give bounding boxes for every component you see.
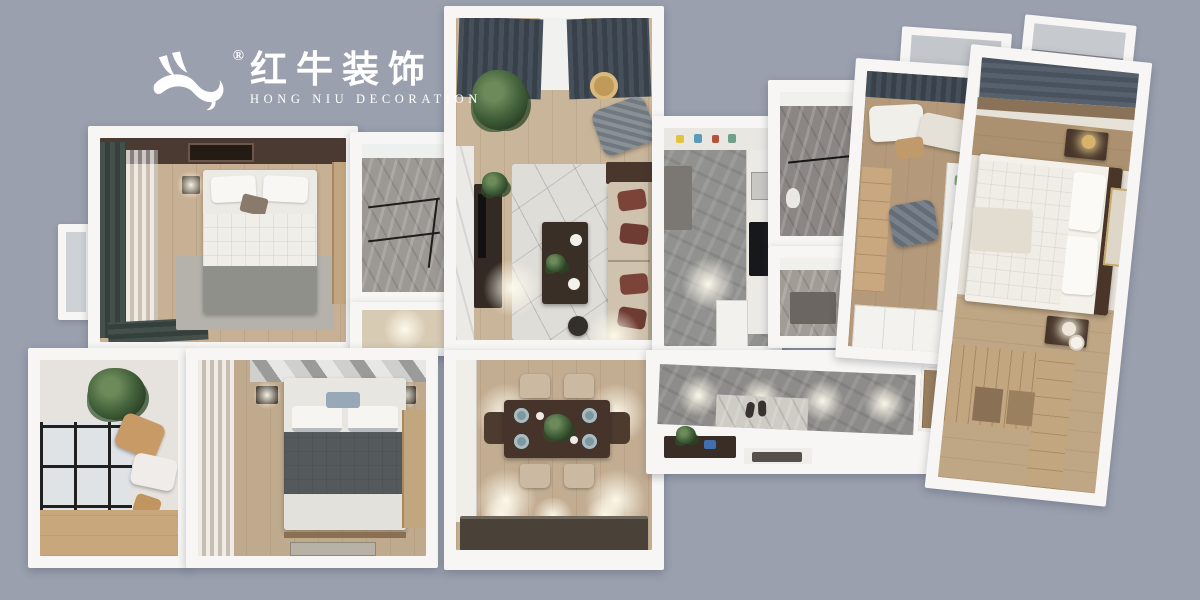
- sheer-curtain: [126, 150, 158, 332]
- pillow: [262, 175, 308, 203]
- door-lintel: [362, 144, 446, 158]
- shoes: [758, 400, 766, 416]
- bed: [284, 378, 406, 530]
- dining-room-floor: [456, 360, 652, 550]
- table-centerpiece: [544, 414, 572, 440]
- console-plant: [676, 426, 696, 444]
- shelf-item: [712, 135, 719, 143]
- registered-mark: ®: [233, 48, 244, 65]
- alcove-floor: [362, 310, 446, 348]
- spotlight-glow: [862, 381, 908, 427]
- logo-text: 红牛装饰 HONG NIU DECORATION: [250, 50, 482, 107]
- dining-chair: [564, 374, 594, 398]
- small-dish: [570, 436, 578, 444]
- prep-counter: [664, 166, 692, 230]
- sheer-curtain-band: [198, 360, 234, 556]
- place-setting: [582, 408, 597, 423]
- seat-pillow: [895, 136, 926, 160]
- bay-window-glass: [66, 232, 86, 312]
- leaning-art: [290, 542, 376, 556]
- duvet-fold: [284, 494, 406, 530]
- hallway-floor-wrap: [656, 360, 966, 464]
- dining-chair: [520, 464, 550, 488]
- tv-marble-wall: [456, 146, 474, 340]
- side-cabinet: [456, 360, 477, 522]
- secondary-bedroom-floor: [100, 138, 346, 342]
- dining-table: [504, 400, 610, 458]
- dish: [568, 278, 580, 290]
- dark-quilt: [284, 432, 406, 494]
- tv-console: [474, 184, 502, 308]
- logo: ® 红牛装饰 HONG NIU DECORATION: [148, 50, 482, 116]
- accent-pillow: [617, 306, 648, 330]
- spotlight-glow: [676, 373, 722, 419]
- shoe-counter: [744, 448, 812, 464]
- duvet: [203, 214, 317, 270]
- coffee-table: [542, 222, 588, 304]
- room-shower: [350, 132, 458, 304]
- wardrobe-panel: [972, 386, 1003, 423]
- kitchen-shelf: [664, 128, 770, 150]
- hallway-floor: [657, 364, 915, 435]
- room-secondary-bedroom: [88, 126, 358, 354]
- bed: [964, 154, 1123, 316]
- bed: [203, 170, 317, 314]
- dining-chair: [520, 374, 550, 398]
- room-kitchen: [652, 116, 782, 358]
- counter-tray: [752, 452, 802, 462]
- sofa-seam: [608, 260, 650, 262]
- accent-pillow: [619, 273, 649, 295]
- pillow: [292, 406, 342, 432]
- desk: [854, 167, 893, 293]
- kitchen-counter: [746, 150, 770, 334]
- page: { "background_color": "#9aa0ae", "logo":…: [0, 0, 1200, 600]
- room-dining: [444, 350, 664, 570]
- lounge-cushion: [129, 452, 178, 492]
- accent-pillow: [619, 223, 649, 246]
- gold-side-table: [590, 72, 618, 100]
- third-bedroom-floor: [198, 360, 426, 556]
- table-plant: [546, 254, 566, 272]
- wardrobe: [332, 162, 346, 304]
- tv-panel: [188, 143, 254, 162]
- dish: [570, 234, 582, 246]
- logo-english-name: HONG NIU DECORATION: [250, 92, 482, 107]
- nightstand: [182, 176, 200, 194]
- master-bedroom-floor: [938, 57, 1139, 493]
- refrigerator: [716, 300, 748, 346]
- accent-pillow: [326, 392, 360, 408]
- window-curtain-left: [100, 142, 126, 338]
- lounge-chair: [589, 94, 652, 158]
- tv-screen: [478, 194, 486, 258]
- console-decor: [704, 440, 716, 449]
- room-third-bedroom: [186, 348, 438, 568]
- entry-console: [664, 436, 736, 458]
- sofa: [608, 182, 652, 340]
- wardrobe: [402, 410, 426, 528]
- bed-end-bench: [284, 532, 406, 538]
- bath-mat: [790, 292, 836, 324]
- balcony-floor: [40, 360, 178, 556]
- small-dish: [536, 412, 544, 420]
- shelf-item: [694, 134, 702, 143]
- place-setting: [514, 434, 529, 449]
- throw-blanket: [971, 207, 1033, 254]
- shelf-item: [728, 134, 736, 143]
- glass-rail: [368, 232, 440, 243]
- shelf-item: [676, 135, 684, 143]
- console-plant: [482, 172, 508, 196]
- potted-plant: [88, 368, 146, 420]
- round-stool: [568, 316, 588, 336]
- shower-room-floor: [362, 144, 446, 292]
- door-lintel: [780, 92, 864, 106]
- sofa-back-table: [606, 162, 652, 184]
- place-setting: [514, 408, 529, 423]
- room-balcony-study: [28, 348, 190, 568]
- accent-pillow: [617, 188, 648, 212]
- place-setting: [582, 434, 597, 449]
- sideboard: [460, 516, 648, 550]
- bull-logo-icon: ®: [148, 50, 240, 116]
- shower-glass: [788, 154, 858, 163]
- pillow: [348, 406, 398, 432]
- glass-rail: [368, 198, 440, 209]
- spotlight-glow: [380, 310, 430, 348]
- logo-chinese-name: 红牛装饰: [250, 50, 482, 90]
- wood-deck: [40, 510, 178, 556]
- sink: [751, 172, 769, 200]
- cooktop: [749, 222, 769, 276]
- blanket: [203, 266, 317, 314]
- living-room-floor: [456, 18, 652, 340]
- kitchen-floor: [664, 128, 770, 346]
- dining-chair: [564, 464, 594, 488]
- nightstand: [256, 386, 278, 404]
- desk-chair: [887, 199, 940, 248]
- toilet: [786, 188, 800, 208]
- room-hallway-entry: [646, 350, 976, 474]
